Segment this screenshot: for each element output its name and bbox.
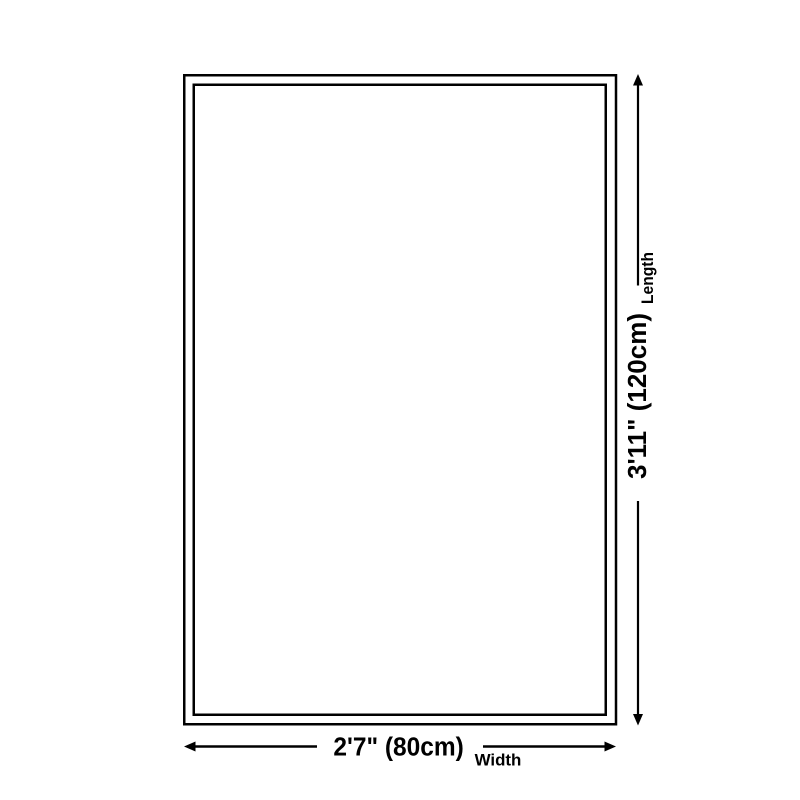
svg-text:2'7" (80cm): 2'7" (80cm) <box>333 734 463 762</box>
svg-text:Width: Width <box>475 751 522 769</box>
svg-text:Length: Length <box>639 252 657 304</box>
svg-text:3'11" (120cm): 3'11" (120cm) <box>624 313 652 479</box>
